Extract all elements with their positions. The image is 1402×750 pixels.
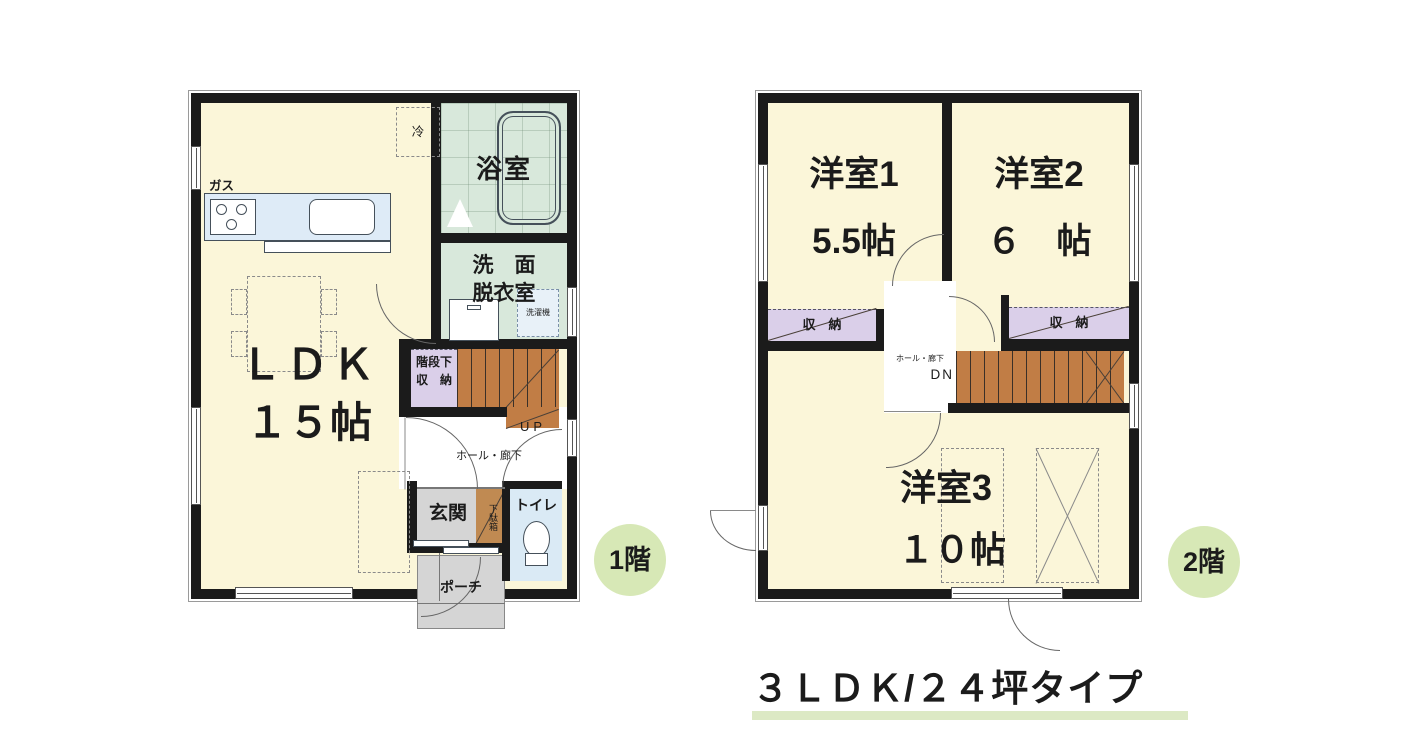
entrance-sliding-door [443, 547, 499, 554]
entrance-label: 玄関 [419, 498, 477, 525]
washroom-label-1: 洗 面 [441, 249, 567, 279]
dn-label: DN [904, 367, 954, 382]
stairs-2f [956, 351, 1124, 403]
toilet-label: トイレ [513, 495, 559, 515]
wall [399, 349, 411, 407]
fridge-label: 冷 [396, 107, 440, 157]
chair [321, 289, 337, 315]
ldk-label-1: ＬＤＫ [219, 331, 399, 392]
stairs-1f [457, 349, 559, 407]
floor2-badge: 2階 [1168, 526, 1240, 598]
counter-edge [264, 241, 391, 253]
burner-icon [226, 219, 237, 230]
wall [441, 233, 567, 243]
window [191, 146, 201, 190]
ldk-label-2: １５帖 [219, 389, 399, 450]
gas-stove-icon [210, 199, 256, 235]
closet-left-label: 収 納 [768, 309, 876, 341]
chair [231, 289, 247, 315]
window [567, 419, 577, 457]
burner-icon [236, 204, 247, 215]
hall-2f [884, 281, 956, 413]
bedroom2-label-2: ６ 帖 [954, 213, 1124, 264]
wall [948, 403, 1129, 413]
door-leaf [405, 418, 406, 490]
washroom-label-2: 脱衣室 [441, 277, 567, 307]
toilet-icon [523, 521, 550, 557]
shoe-cabinet-label: 下駄箱 [480, 493, 500, 541]
window-leaf [710, 510, 756, 511]
gas-label: ガス [209, 175, 253, 194]
window [951, 587, 1063, 599]
caption-underline [752, 711, 1188, 720]
window [1129, 164, 1139, 282]
bathroom-label: 浴室 [441, 149, 567, 186]
toilet-tank-icon [525, 553, 548, 566]
porch-label: ポーチ [423, 577, 499, 597]
plan-type-caption: ３ＬＤＫ/２４坪タイプ [752, 658, 1192, 712]
burner-icon [216, 204, 227, 215]
bedroom2-label-1: 洋室2 [954, 146, 1124, 197]
wall [1001, 339, 1129, 351]
window [235, 587, 353, 599]
stair-storage-label-1: 階段下 [411, 353, 457, 370]
closet-right-label: 収 納 [1009, 307, 1129, 339]
wall [768, 341, 884, 351]
entrance-sliding-door [413, 540, 469, 547]
wall [502, 481, 510, 581]
window [758, 164, 768, 282]
door-leaf [884, 411, 941, 412]
window [567, 287, 577, 337]
laundry-label: 洗濯機 [517, 307, 559, 318]
wall [1001, 295, 1009, 339]
floor2-plan: 洋室1 5.5帖 洋室2 ６ 帖 収 納 収 納 ホール・廊下 DN 洋室3 １… [755, 90, 1142, 602]
stair-storage-label-2: 収 納 [411, 371, 457, 388]
floor1-badge: 1階 [594, 524, 666, 596]
wall [876, 309, 884, 341]
bedroom3-label-1: 洋室3 [856, 459, 1036, 511]
bedroom1-label-2: 5.5帖 [772, 213, 936, 264]
sofa [358, 471, 410, 573]
shower-door-icon [447, 199, 473, 227]
floorplan-canvas: ガス 冷 浴室 洗 面 脱衣室 洗濯機 ＬＤＫ １５帖 階段下 収 納 UP ホ… [0, 0, 1402, 750]
hall-1f-label: ホール・廊下 [427, 447, 551, 463]
window [191, 407, 201, 505]
window [1129, 383, 1139, 429]
window [758, 505, 768, 551]
floor1-plan: ガス 冷 浴室 洗 面 脱衣室 洗濯機 ＬＤＫ １５帖 階段下 収 納 UP ホ… [188, 90, 580, 602]
door-arc-balcony [1008, 599, 1060, 651]
wall [399, 407, 507, 417]
bedroom3-label-2: １０帖 [862, 521, 1042, 573]
window-arc [710, 511, 756, 551]
hall-2f-label: ホール・廊下 [882, 353, 958, 364]
up-label: UP [507, 419, 559, 434]
bedroom1-label-1: 洋室1 [772, 146, 936, 197]
sink-icon [309, 199, 375, 235]
